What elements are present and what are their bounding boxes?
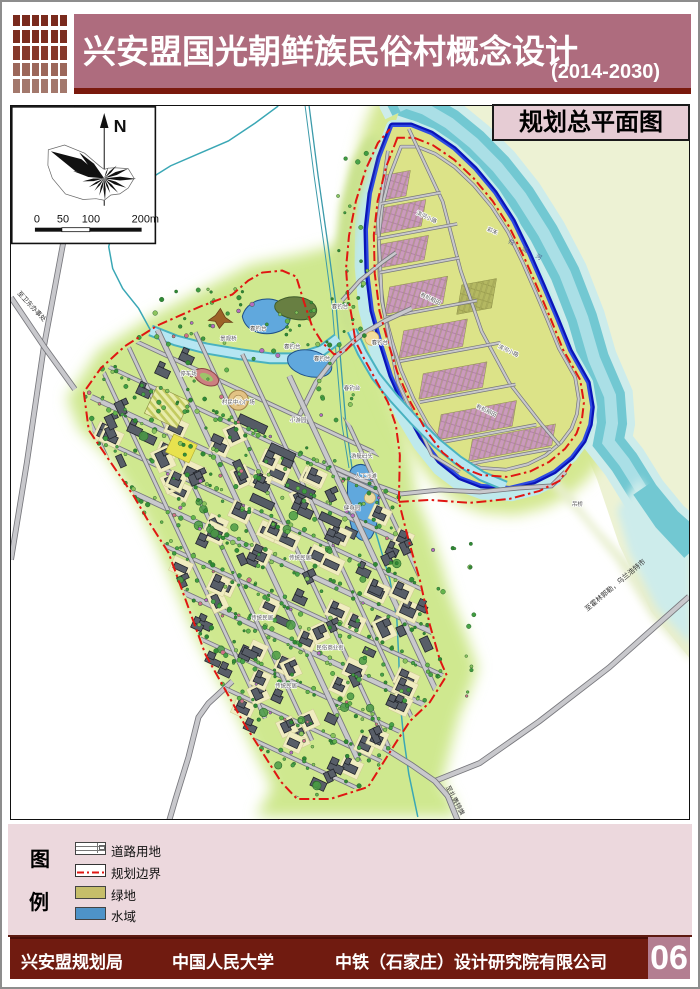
svg-text:传统民居: 传统民居 [289,554,311,562]
svg-text:春钓台: 春钓台 [372,338,389,346]
svg-text:村民中心广场: 村民中心广场 [222,398,255,406]
svg-text:N: N [114,116,127,136]
svg-text:民俗商业街: 民俗商业街 [316,643,344,651]
svg-text:200m: 200m [132,214,159,226]
svg-text:景观桥: 景观桥 [220,334,237,342]
svg-text:传统民居: 传统民居 [251,614,273,622]
svg-text:至卫东办事处: 至卫东办事处 [16,289,49,324]
svg-text:0: 0 [34,214,40,226]
svg-text:吊桥: 吊桥 [572,500,583,508]
svg-text:健身园: 健身园 [344,504,361,512]
svg-text:春钓台: 春钓台 [250,324,267,332]
svg-text:停车场: 停车场 [180,369,197,377]
svg-text:小游园: 小游园 [290,416,307,424]
svg-text:100: 100 [82,214,100,226]
svg-text:人工沙滩: 人工沙滩 [355,472,377,480]
svg-text:游艇码头: 游艇码头 [351,452,373,460]
svg-text:春钓台: 春钓台 [284,342,301,350]
svg-text:春钓台: 春钓台 [344,384,361,392]
svg-text:春钓台: 春钓台 [332,302,349,310]
svg-text:50: 50 [57,214,69,226]
svg-text:传统民居: 传统民居 [275,681,297,689]
svg-text:春钓台: 春钓台 [314,354,331,362]
